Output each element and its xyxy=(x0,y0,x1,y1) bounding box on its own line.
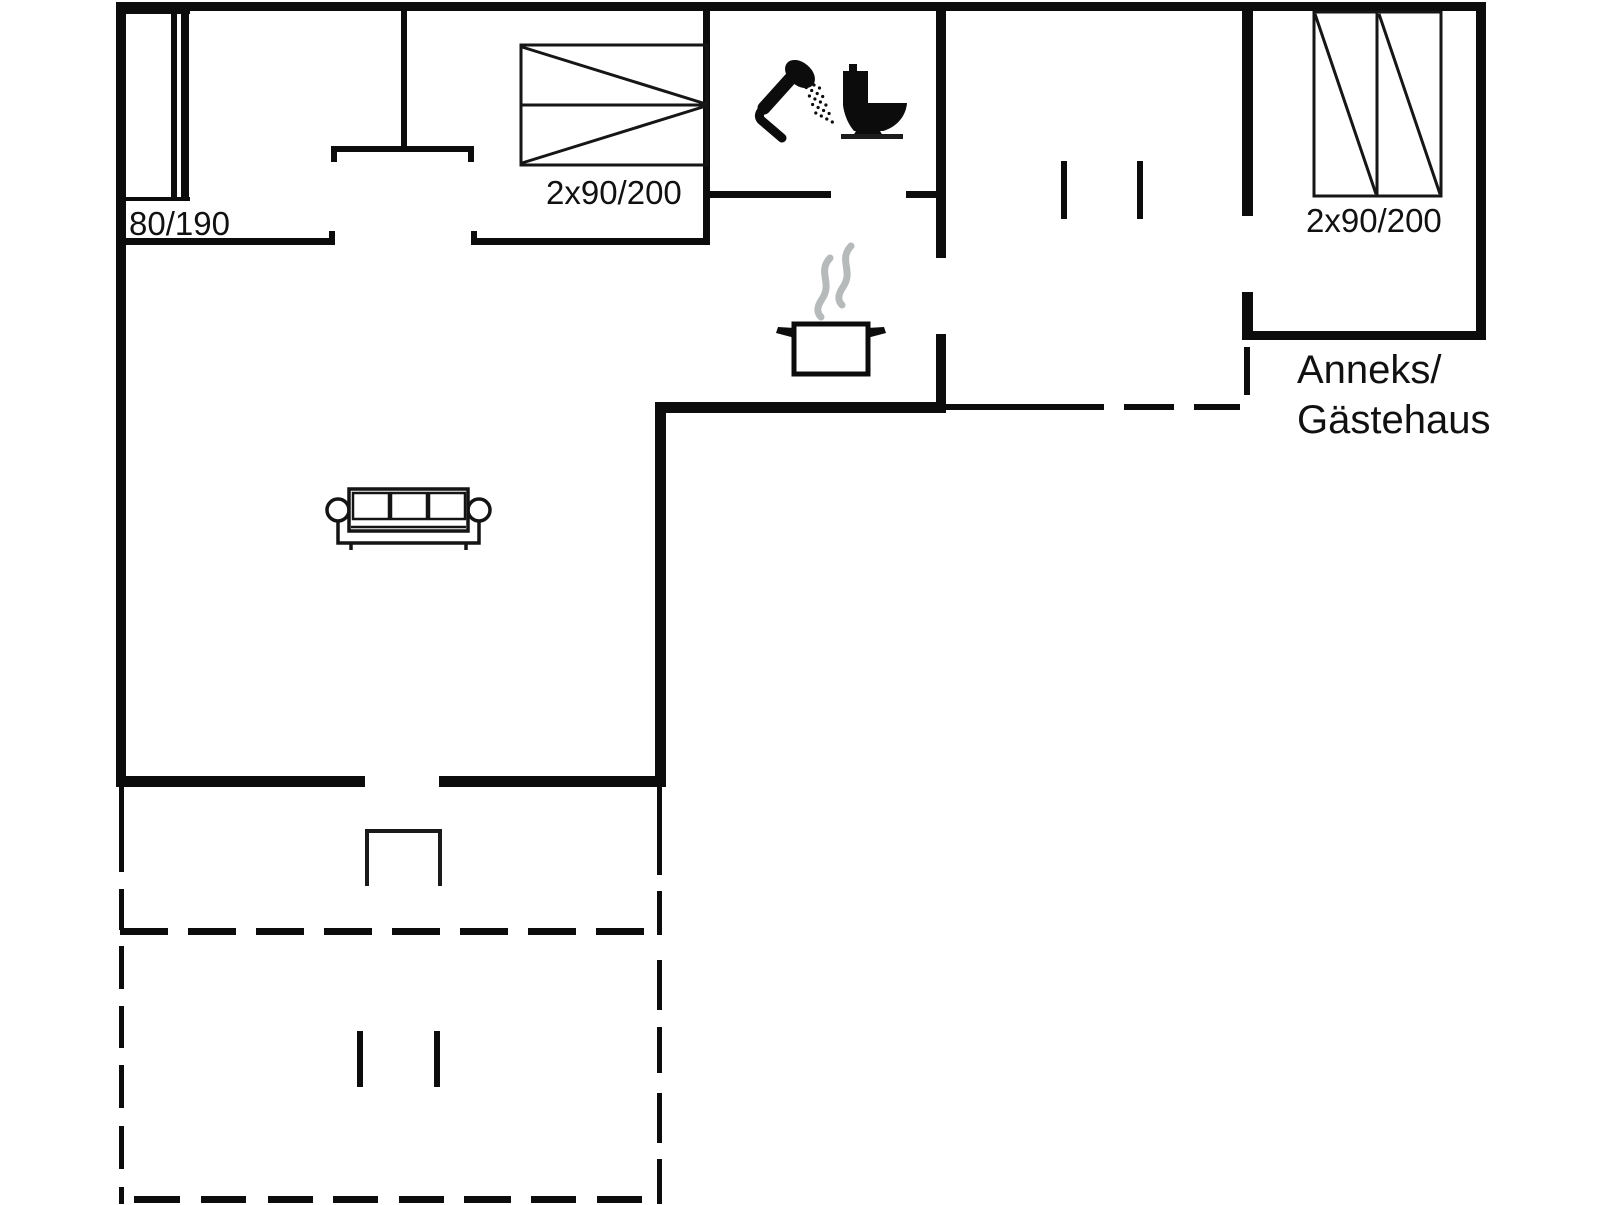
svg-text:Anneks/: Anneks/ xyxy=(1297,348,1442,392)
svg-text:2x90/200: 2x90/200 xyxy=(546,174,682,211)
svg-text:Gästehaus: Gästehaus xyxy=(1297,398,1490,442)
svg-text:2x90/200: 2x90/200 xyxy=(1306,202,1442,239)
svg-text:80/190: 80/190 xyxy=(129,205,230,242)
